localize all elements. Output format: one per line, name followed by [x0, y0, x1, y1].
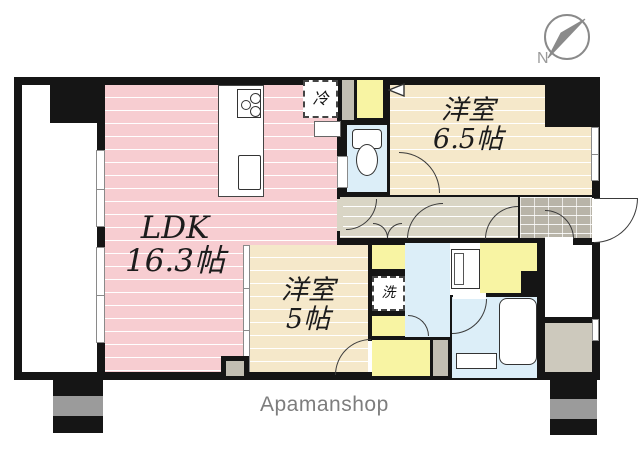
vanity-mirror — [454, 253, 464, 285]
closet — [372, 316, 405, 336]
stove — [237, 89, 261, 118]
window — [96, 150, 105, 227]
stove-burner — [250, 93, 261, 104]
sliding-partition — [243, 245, 250, 372]
ldk-label: LDK 16.3帖 — [95, 212, 255, 279]
storage-room — [545, 245, 592, 317]
bathtub — [499, 298, 537, 365]
front-door-arc — [594, 198, 638, 243]
toilet-bowl — [356, 144, 378, 176]
toilet-door — [337, 156, 348, 188]
counter-end — [314, 121, 341, 137]
closet — [357, 80, 383, 118]
hallway-opening — [337, 199, 343, 231]
pillar-core — [226, 361, 244, 376]
closet — [372, 245, 405, 269]
refrigerator-space: 冷 — [303, 80, 338, 118]
balcony-divider — [53, 380, 103, 433]
kitchen-sink — [238, 155, 261, 190]
pipe-space — [433, 340, 448, 376]
window — [592, 319, 599, 341]
pipe-space — [342, 80, 354, 120]
bedroom-65-name: 洋室 — [393, 96, 543, 125]
ldk-name: LDK — [95, 212, 255, 245]
bedroom-5-size: 5帖 — [250, 305, 366, 334]
vanity-sink — [451, 249, 480, 289]
pillar — [545, 77, 594, 127]
compass-north-label: N — [537, 50, 549, 68]
balcony-divider — [550, 380, 597, 435]
washing-machine-label: 洗 — [374, 278, 403, 309]
service-balcony — [545, 323, 592, 372]
bedroom-65-label: 洋室 6.5帖 — [393, 96, 543, 154]
bedroom-5-name: 洋室 — [250, 276, 366, 305]
balcony — [22, 85, 97, 372]
window — [96, 247, 105, 343]
pillar — [50, 77, 103, 123]
bath-counter — [456, 353, 497, 369]
floor-plan: N LDK 16.3帖 冷 洋室 6.5帖 — [0, 0, 640, 455]
wall-notch — [521, 271, 537, 293]
ldk-size: 16.3帖 — [95, 245, 255, 278]
refrigerator-label: 冷 — [305, 82, 336, 116]
bedroom-5-label: 洋室 5帖 — [250, 276, 366, 334]
stove-burner — [250, 106, 261, 117]
window — [591, 127, 599, 181]
washing-machine-space: 洗 — [372, 276, 405, 311]
bedroom-65-size: 6.5帖 — [393, 125, 543, 154]
closet — [372, 340, 430, 376]
brand-logo: Apamanshop — [260, 393, 389, 417]
storage-door-opening — [545, 237, 573, 245]
